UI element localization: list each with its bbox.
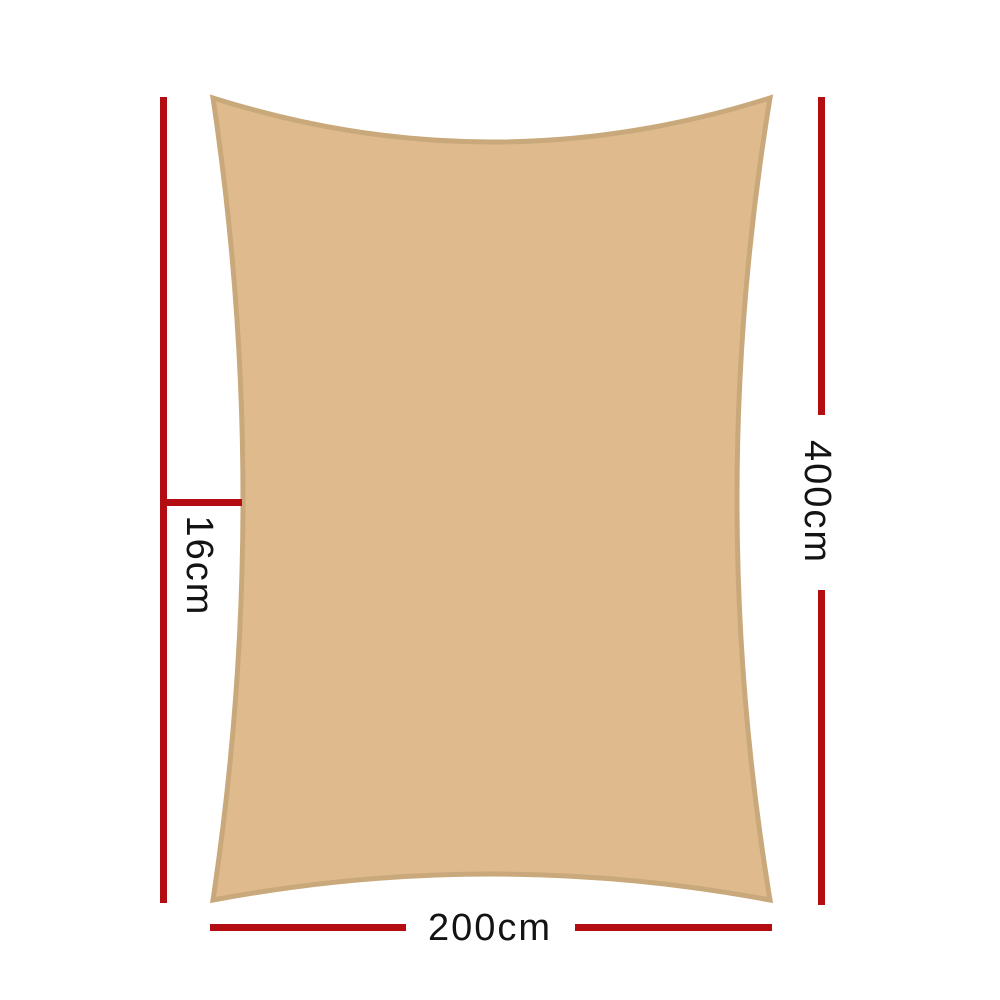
inset-dimension-label: 16cm [180, 516, 218, 617]
shade-sail-shape [213, 98, 770, 900]
right-dimension-line-upper [818, 97, 825, 415]
diagram-canvas: 400cm 16cm 200cm [0, 0, 1000, 1000]
bottom-dimension-line-left [210, 924, 406, 931]
height-dimension-label: 400cm [798, 440, 836, 564]
right-dimension-line-lower [818, 590, 825, 905]
bottom-dimension-line-right [575, 924, 772, 931]
left-dimension-tick [160, 499, 242, 506]
shade-sail-graphic [0, 0, 1000, 1000]
width-dimension-label: 200cm [428, 909, 552, 947]
